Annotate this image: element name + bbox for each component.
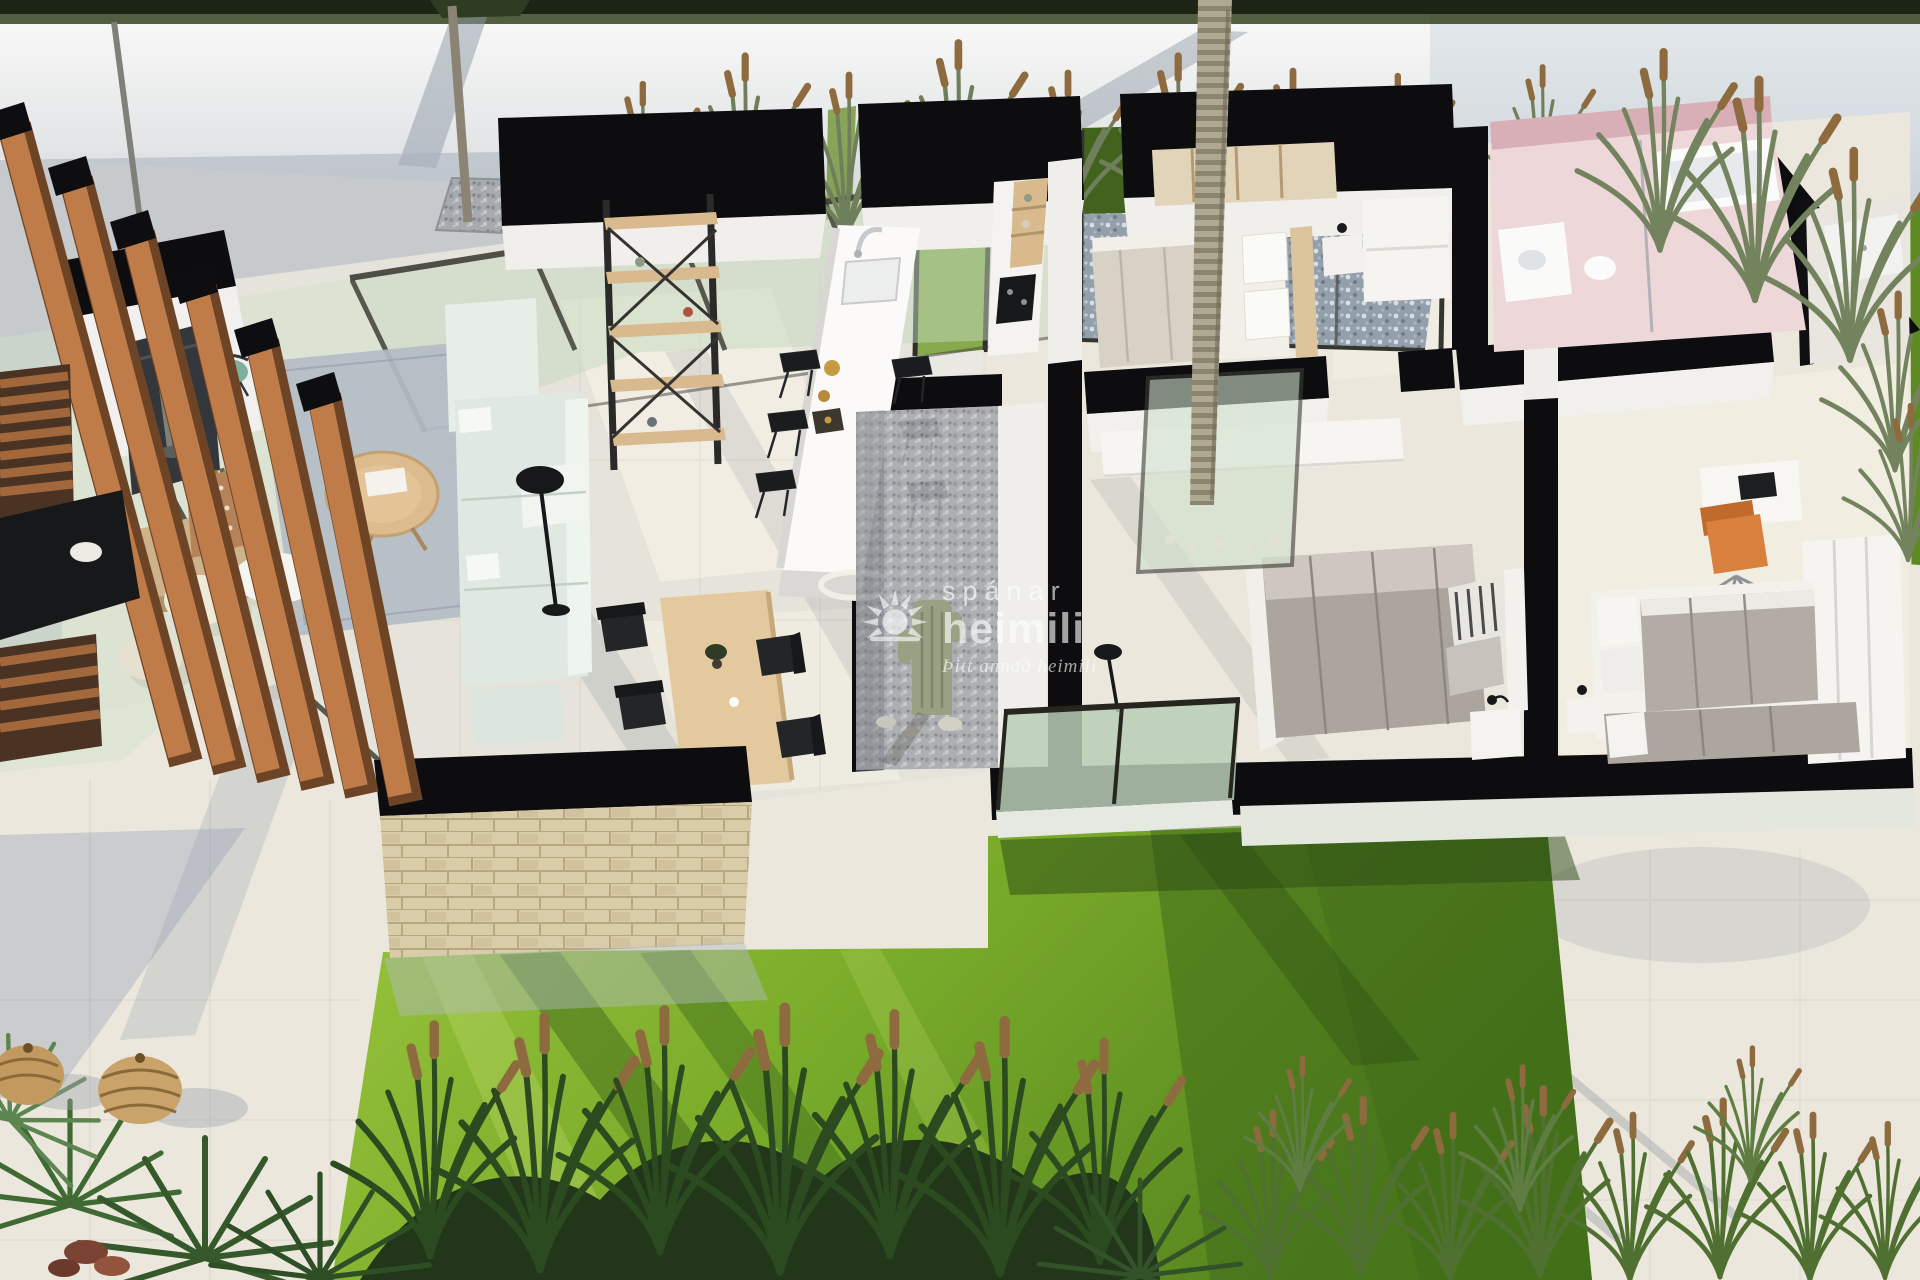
sink: [842, 258, 900, 304]
nightstand: [1470, 708, 1522, 760]
kitchen-counter: [988, 178, 1048, 356]
corner-window: [996, 700, 1240, 838]
wardrobe: [1152, 142, 1337, 206]
toilet: [1584, 256, 1616, 280]
cooktop: [996, 274, 1036, 324]
laptop: [1738, 472, 1777, 500]
bedside-lamp: [1337, 223, 1347, 233]
table-plant: [705, 644, 727, 660]
stone-feature-wall: [374, 746, 768, 1016]
floorplan-illustration: [0, 0, 1920, 1280]
floorplan-render: Aerial cutaway 3D rendering of a modern …: [0, 0, 1920, 1280]
cactus-bed: [856, 406, 998, 772]
